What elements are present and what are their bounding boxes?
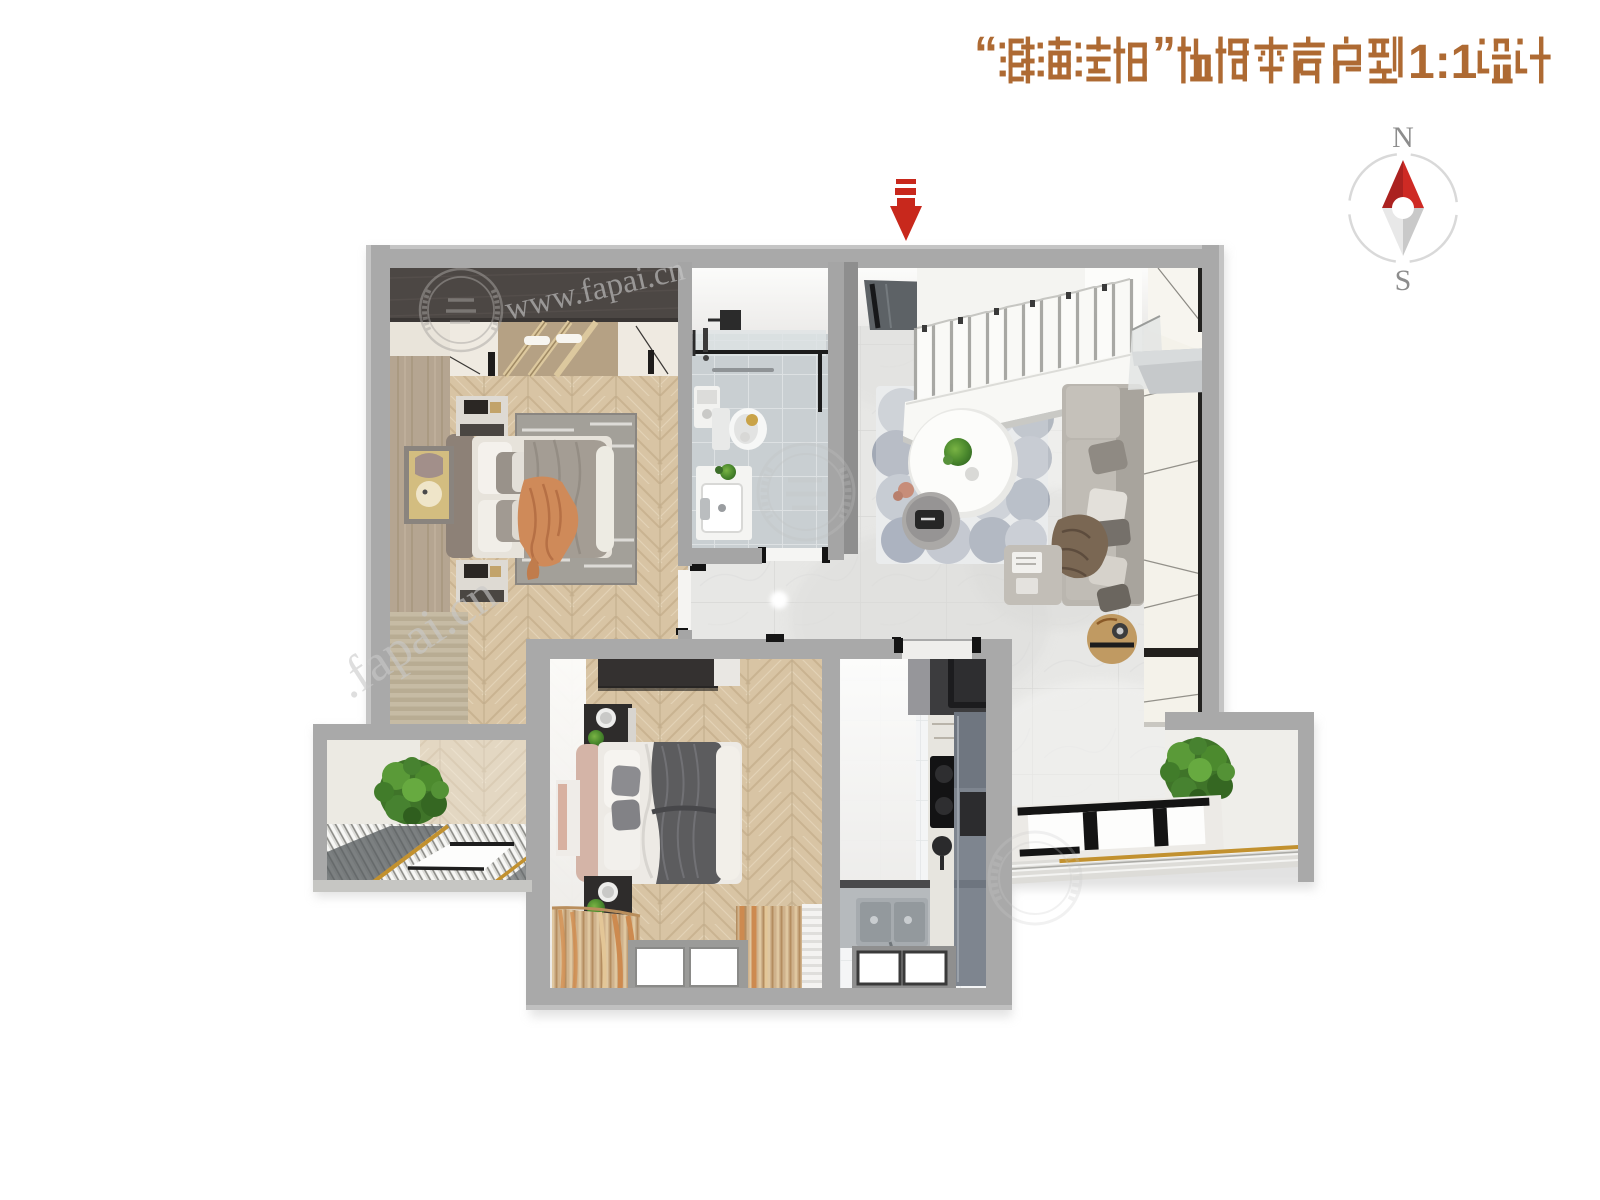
svg-text:1:1: 1:1 [1408, 36, 1477, 89]
svg-text:“: “ [974, 28, 998, 81]
svg-text:S: S [1395, 264, 1412, 297]
svg-text:N: N [1392, 121, 1414, 154]
svg-text:”: ” [1152, 28, 1176, 81]
